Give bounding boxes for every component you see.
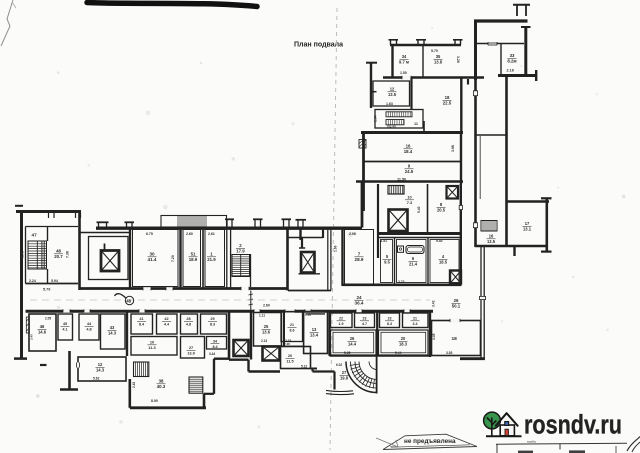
svg-text:1.9: 1.9: [339, 322, 344, 326]
svg-text:5.25: 5.25: [344, 351, 351, 355]
svg-text:2.98: 2.98: [349, 232, 356, 236]
svg-text:18.5: 18.5: [439, 260, 448, 265]
svg-text:24.5: 24.5: [405, 169, 414, 174]
svg-text:23: 23: [388, 317, 392, 321]
svg-text:13.8: 13.8: [434, 60, 443, 65]
svg-text:4.8: 4.8: [186, 323, 191, 327]
svg-text:5.62: 5.62: [93, 377, 100, 381]
svg-text:11: 11: [414, 122, 418, 126]
svg-text:38: 38: [159, 379, 164, 384]
svg-text:20.7: 20.7: [54, 254, 63, 259]
svg-text:20: 20: [288, 354, 292, 358]
svg-text:1.15: 1.15: [305, 313, 311, 317]
svg-text:8.6: 8.6: [290, 329, 295, 333]
svg-text:28: 28: [186, 317, 190, 321]
svg-text:10: 10: [150, 340, 155, 345]
svg-text:5.44: 5.44: [395, 351, 402, 355]
svg-text:18.9: 18.9: [189, 257, 198, 262]
svg-text:20.5: 20.5: [437, 208, 446, 213]
svg-text:1.11: 1.11: [259, 314, 265, 318]
svg-text:9.7 м: 9.7 м: [399, 60, 409, 65]
svg-text:2.24: 2.24: [29, 279, 36, 283]
svg-text:1: 1: [210, 252, 213, 257]
svg-text:1.63: 1.63: [386, 102, 393, 106]
svg-text:11.3: 11.3: [148, 345, 156, 350]
svg-text:41.4: 41.4: [148, 257, 157, 262]
svg-text:12: 12: [390, 87, 395, 92]
svg-text:13.1: 13.1: [523, 227, 532, 232]
svg-text:3.44: 3.44: [209, 352, 215, 356]
svg-text:13.5: 13.5: [487, 239, 496, 244]
svg-text:6.02: 6.02: [336, 363, 342, 367]
svg-text:11.5: 11.5: [286, 360, 293, 364]
svg-text:30: 30: [149, 252, 155, 257]
svg-text:29: 29: [210, 317, 214, 321]
svg-text:21.4: 21.4: [409, 262, 418, 267]
svg-text:13.4: 13.4: [310, 333, 319, 338]
svg-text:5.79: 5.79: [21, 251, 25, 258]
svg-text:2.13: 2.13: [261, 339, 267, 343]
svg-text:42: 42: [164, 317, 168, 321]
svg-text:20: 20: [401, 336, 406, 341]
svg-text:2.43: 2.43: [132, 382, 136, 388]
svg-text:4.4: 4.4: [164, 323, 170, 327]
svg-text:45: 45: [63, 322, 67, 326]
svg-text:14.4: 14.4: [348, 342, 357, 347]
svg-text:36.4: 36.4: [355, 301, 364, 306]
svg-text:2.61: 2.61: [208, 232, 215, 236]
svg-text:19.8: 19.8: [340, 376, 349, 381]
svg-text:8.2м: 8.2м: [507, 59, 516, 64]
svg-text:не предъявлена: не предъявлена: [404, 438, 456, 445]
svg-text:3.40: 3.40: [30, 334, 34, 340]
svg-text:13.6: 13.6: [262, 330, 271, 335]
svg-text:13.5: 13.5: [388, 92, 397, 97]
svg-text:7.20: 7.20: [171, 255, 175, 262]
svg-text:3.83: 3.83: [446, 351, 453, 355]
svg-text:46: 46: [40, 324, 45, 329]
svg-text:1.50: 1.50: [400, 71, 407, 75]
svg-text:6: 6: [412, 256, 415, 261]
svg-text:2.60: 2.60: [186, 232, 193, 236]
svg-text:8.4: 8.4: [139, 323, 145, 327]
svg-text:7.38: 7.38: [66, 251, 70, 258]
svg-text:3.26: 3.26: [456, 56, 460, 63]
svg-text:4.8: 4.8: [86, 328, 91, 332]
svg-text:10: 10: [407, 195, 412, 200]
svg-text:7: 7: [358, 252, 361, 257]
svg-text:47: 47: [32, 233, 38, 238]
svg-text:50.1: 50.1: [452, 304, 461, 309]
svg-text:5.40: 5.40: [417, 206, 421, 213]
svg-text:24: 24: [356, 295, 362, 300]
svg-text:5.94: 5.94: [51, 279, 58, 283]
svg-text:51: 51: [191, 252, 196, 257]
svg-text:28.9: 28.9: [355, 257, 364, 262]
svg-text:6.75: 6.75: [146, 232, 153, 236]
svg-text:Лв.40: Лв.40: [387, 125, 396, 129]
svg-text:17: 17: [525, 221, 530, 226]
svg-text:9.40: 9.40: [436, 239, 443, 243]
svg-text:1.51: 1.51: [381, 239, 388, 243]
svg-text:18.3: 18.3: [399, 342, 408, 347]
svg-text:14.6: 14.6: [38, 330, 47, 335]
svg-text:5.70: 5.70: [431, 49, 438, 53]
svg-text:8.4: 8.4: [212, 345, 218, 349]
svg-text:13: 13: [312, 327, 317, 332]
svg-text:26: 26: [454, 298, 459, 303]
svg-text:7.3: 7.3: [407, 200, 413, 205]
svg-text:23: 23: [363, 317, 367, 321]
svg-text:5.12: 5.12: [301, 364, 307, 368]
svg-text:25: 25: [264, 324, 269, 329]
svg-text:5.79: 5.79: [43, 288, 50, 292]
svg-text:4.1: 4.1: [62, 328, 67, 332]
svg-text:rosndv.ru: rosndv.ru: [524, 410, 622, 440]
svg-text:1.66: 1.66: [334, 245, 338, 252]
svg-text:17.9: 17.9: [236, 249, 245, 254]
svg-text:22: 22: [339, 317, 343, 321]
svg-text:3.43: 3.43: [432, 300, 436, 307]
svg-text:48: 48: [56, 249, 61, 254]
svg-text:14.3: 14.3: [96, 368, 105, 373]
svg-text:9.5: 9.5: [384, 260, 390, 265]
svg-text:16: 16: [489, 234, 494, 239]
svg-text:2.60: 2.60: [263, 304, 270, 308]
svg-text:26: 26: [350, 336, 355, 341]
svg-text:3.98: 3.98: [451, 145, 455, 152]
svg-text:48: 48: [126, 299, 131, 304]
svg-text:4.7: 4.7: [362, 322, 367, 326]
svg-text:22.5: 22.5: [443, 101, 452, 106]
svg-text:1.64: 1.64: [374, 115, 378, 122]
svg-text:18.4: 18.4: [404, 149, 413, 154]
svg-text:21.9: 21.9: [207, 257, 216, 262]
svg-text:21: 21: [290, 323, 294, 327]
svg-text:2: 2: [239, 243, 242, 248]
svg-text:34: 34: [213, 339, 218, 343]
svg-text:16: 16: [406, 144, 411, 149]
svg-text:2.05: 2.05: [45, 317, 51, 321]
svg-text:4.45: 4.45: [432, 333, 436, 340]
svg-text:34: 34: [402, 54, 407, 59]
svg-text:27: 27: [342, 370, 347, 375]
svg-text:2.73: 2.73: [398, 280, 405, 284]
svg-text:8.3: 8.3: [210, 323, 215, 327]
svg-text:труба: труба: [527, 439, 536, 443]
svg-text:2.16: 2.16: [507, 69, 514, 73]
svg-text:9: 9: [408, 164, 411, 169]
svg-text:35: 35: [436, 54, 441, 59]
svg-text:33: 33: [510, 53, 515, 58]
svg-text:5: 5: [386, 254, 389, 259]
svg-text:8.90: 8.90: [151, 399, 158, 403]
svg-text:План подвала: План подвала: [294, 42, 343, 49]
svg-text:3.4: 3.4: [413, 322, 418, 326]
svg-text:13.9: 13.9: [187, 351, 195, 356]
svg-text:12: 12: [98, 362, 103, 367]
svg-text:18: 18: [445, 95, 450, 100]
svg-text:44: 44: [87, 322, 92, 326]
svg-text:14.3: 14.3: [108, 331, 117, 336]
svg-text:18: 18: [452, 336, 458, 342]
svg-text:41: 41: [139, 317, 143, 321]
svg-text:43: 43: [110, 325, 115, 330]
svg-text:8: 8: [440, 202, 443, 207]
svg-text:40.3: 40.3: [157, 384, 166, 389]
svg-text:27: 27: [189, 345, 193, 350]
svg-text:4: 4: [442, 254, 445, 259]
svg-text:8.3: 8.3: [387, 322, 392, 326]
svg-text:21: 21: [413, 317, 417, 321]
